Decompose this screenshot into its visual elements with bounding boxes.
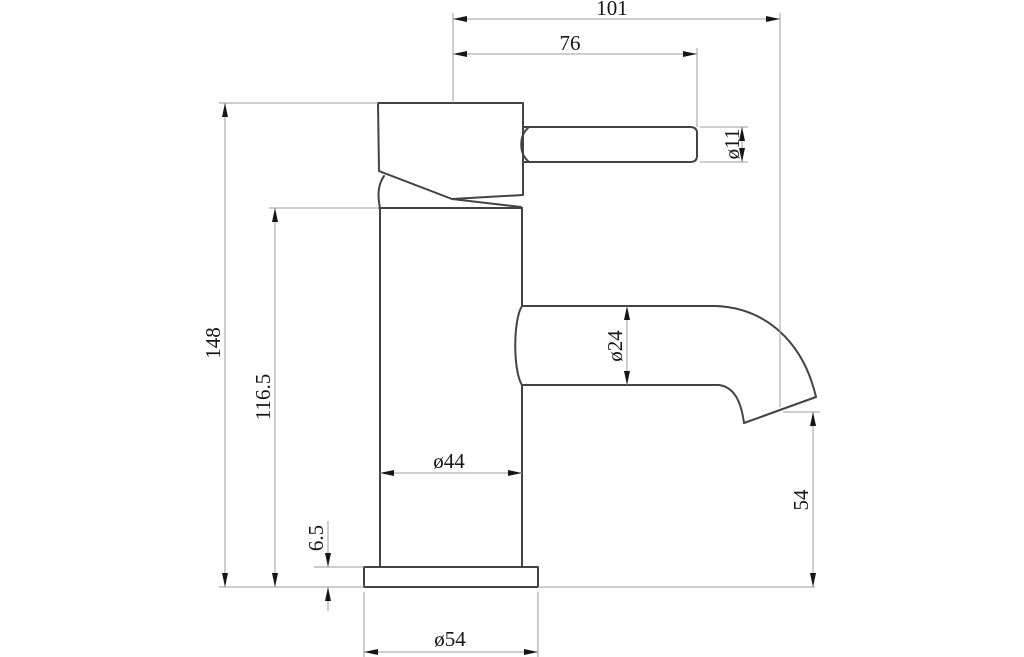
handle-knob-outline [378, 103, 523, 199]
handle-skirt-lip-line [452, 199, 521, 207]
arrow-24-top [624, 306, 630, 320]
faucet-outline [364, 103, 816, 587]
base-plate-outline [364, 567, 538, 587]
arrow-76-right [683, 51, 697, 57]
arrow-54-bottom [810, 573, 816, 587]
arrow-76-left [453, 51, 467, 57]
arrow-101-right [766, 16, 780, 22]
dim-label-spout-tube-diameter: ø24 [603, 330, 627, 362]
dimension-labels: 101 76 ø11 ø24 54 148 116.5 6.5 ø44 ø54 [201, 0, 813, 651]
drawing-page: 101 76 ø11 ø24 54 148 116.5 6.5 ø44 ø54 [0, 0, 1024, 657]
dim-label-base-plate-diameter: ø54 [434, 627, 466, 651]
arrow-24-bottom [624, 371, 630, 385]
dim-label-reach-handle: 76 [560, 31, 581, 55]
dim-label-reach-overall: 101 [596, 0, 628, 20]
arrow-44-right [508, 470, 522, 476]
arrow-116-bottom [272, 573, 278, 587]
dim-label-body-diameter: ø44 [433, 449, 465, 473]
dimension-arrows [222, 16, 816, 655]
faucet-dimension-drawing: 101 76 ø11 ø24 54 148 116.5 6.5 ø44 ø54 [0, 0, 1024, 657]
dimension-lines [219, 13, 820, 657]
arrow-54-top [810, 412, 816, 426]
dim-label-overall-height: 148 [201, 327, 225, 359]
arrow-116-top [272, 208, 278, 222]
arrow-148-bottom [222, 573, 228, 587]
lever-arm-outline [523, 127, 697, 162]
arrow-54base-right [524, 649, 538, 655]
dim-label-base-plate-thickness: 6.5 [304, 525, 328, 551]
arrow-101-left [453, 16, 467, 22]
spout-top-edge [522, 306, 816, 397]
arrow-6-5-upper [325, 553, 331, 567]
arrow-6-5-lower [325, 587, 331, 601]
handle-neck-arc [379, 176, 384, 208]
arrow-148-top [222, 103, 228, 117]
arrow-44-left [380, 470, 394, 476]
spout-bottom-edge [522, 385, 744, 423]
arrow-54base-left [364, 649, 378, 655]
dim-label-body-height: 116.5 [251, 374, 275, 420]
dim-label-lever-diameter: ø11 [720, 129, 744, 160]
dim-label-spout-outlet-height: 54 [789, 489, 813, 511]
spout-root-arc [515, 306, 522, 385]
